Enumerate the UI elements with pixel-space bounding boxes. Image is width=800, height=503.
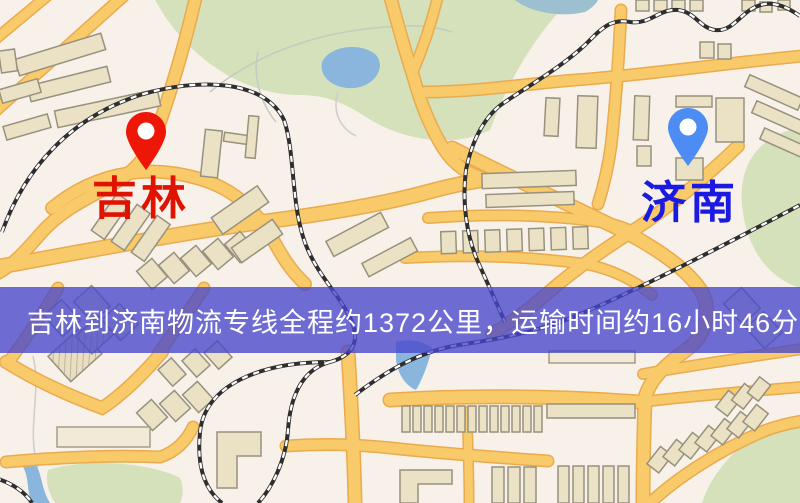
destination-pin-icon — [666, 106, 710, 168]
map-background — [0, 0, 800, 503]
logistics-route-map: 吉林 济南 吉林到济南物流专线全程约1372公里，运输时间约16小时46分钟. — [0, 0, 800, 503]
route-info-banner: 吉林到济南物流专线全程约1372公里，运输时间约16小时46分钟. — [0, 287, 800, 353]
origin-pin-icon — [124, 110, 168, 172]
origin-label: 吉林 — [92, 176, 190, 221]
route-info-text: 吉林到济南物流专线全程约1372公里，运输时间约16小时46分钟. — [27, 301, 800, 340]
destination-label: 济南 — [641, 180, 739, 225]
